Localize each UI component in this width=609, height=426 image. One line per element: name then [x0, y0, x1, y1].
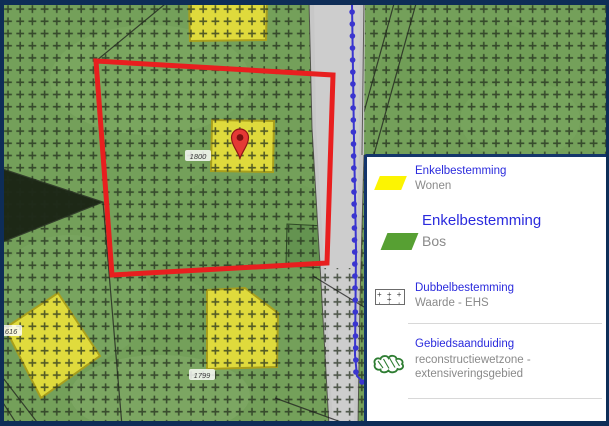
legend-panel: Enkelbestemming Wonen Enkelbestemming Bo… — [364, 154, 606, 421]
legend-name: Wonen — [415, 180, 451, 192]
legend-name: reconstructiewetzone - extensiveringsgeb… — [415, 353, 573, 381]
gebiedsaanduiding-swatch-icon — [371, 353, 407, 380]
legend-divider — [408, 398, 602, 399]
waarde-ehs-swatch-icon — [375, 289, 405, 305]
legend-name: Waarde - EHS — [415, 297, 489, 309]
legend-name: Bos — [422, 233, 446, 249]
legend-category: Dubbelbestemming — [415, 282, 514, 294]
legend-category: Enkelbestemming — [415, 165, 506, 177]
map-viewer-window: 180016161799 Enkelbestemming Wonen Enkel… — [0, 0, 609, 426]
svg-text:1800: 1800 — [190, 152, 208, 161]
wonen-swatch-icon — [374, 176, 407, 190]
svg-text:1799: 1799 — [194, 371, 212, 380]
legend-category: Enkelbestemming — [422, 212, 541, 229]
legend-category: Gebiedsaanduiding — [415, 338, 514, 350]
legend-divider — [408, 323, 602, 324]
svg-text:1616: 1616 — [4, 327, 18, 336]
